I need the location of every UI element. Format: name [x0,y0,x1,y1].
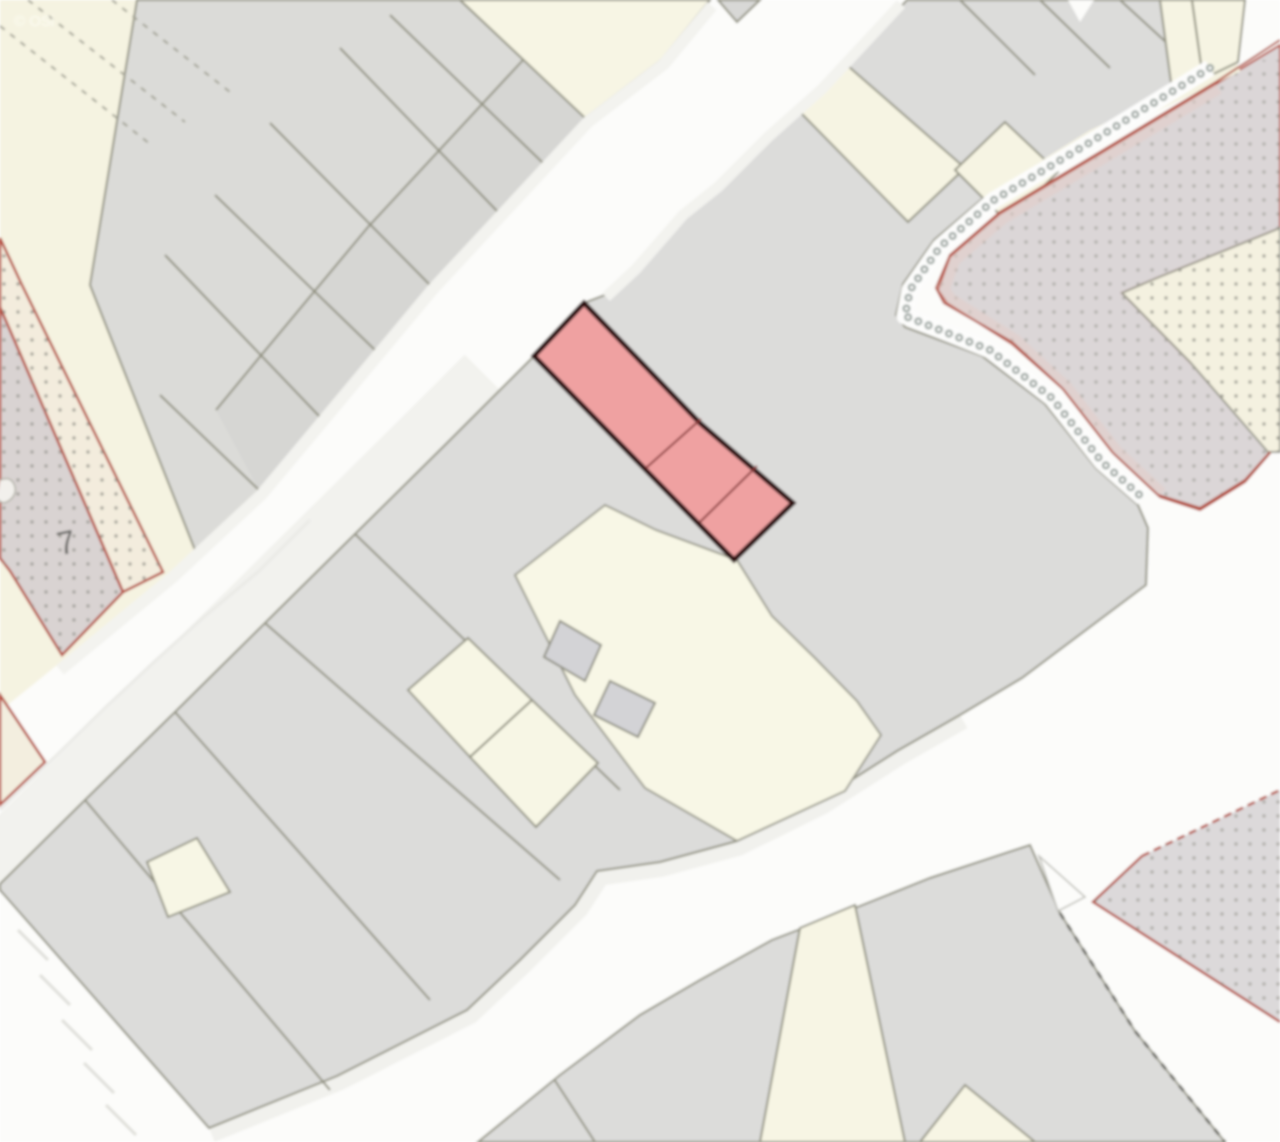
svg-text:© OSi: © OSi [14,13,54,30]
